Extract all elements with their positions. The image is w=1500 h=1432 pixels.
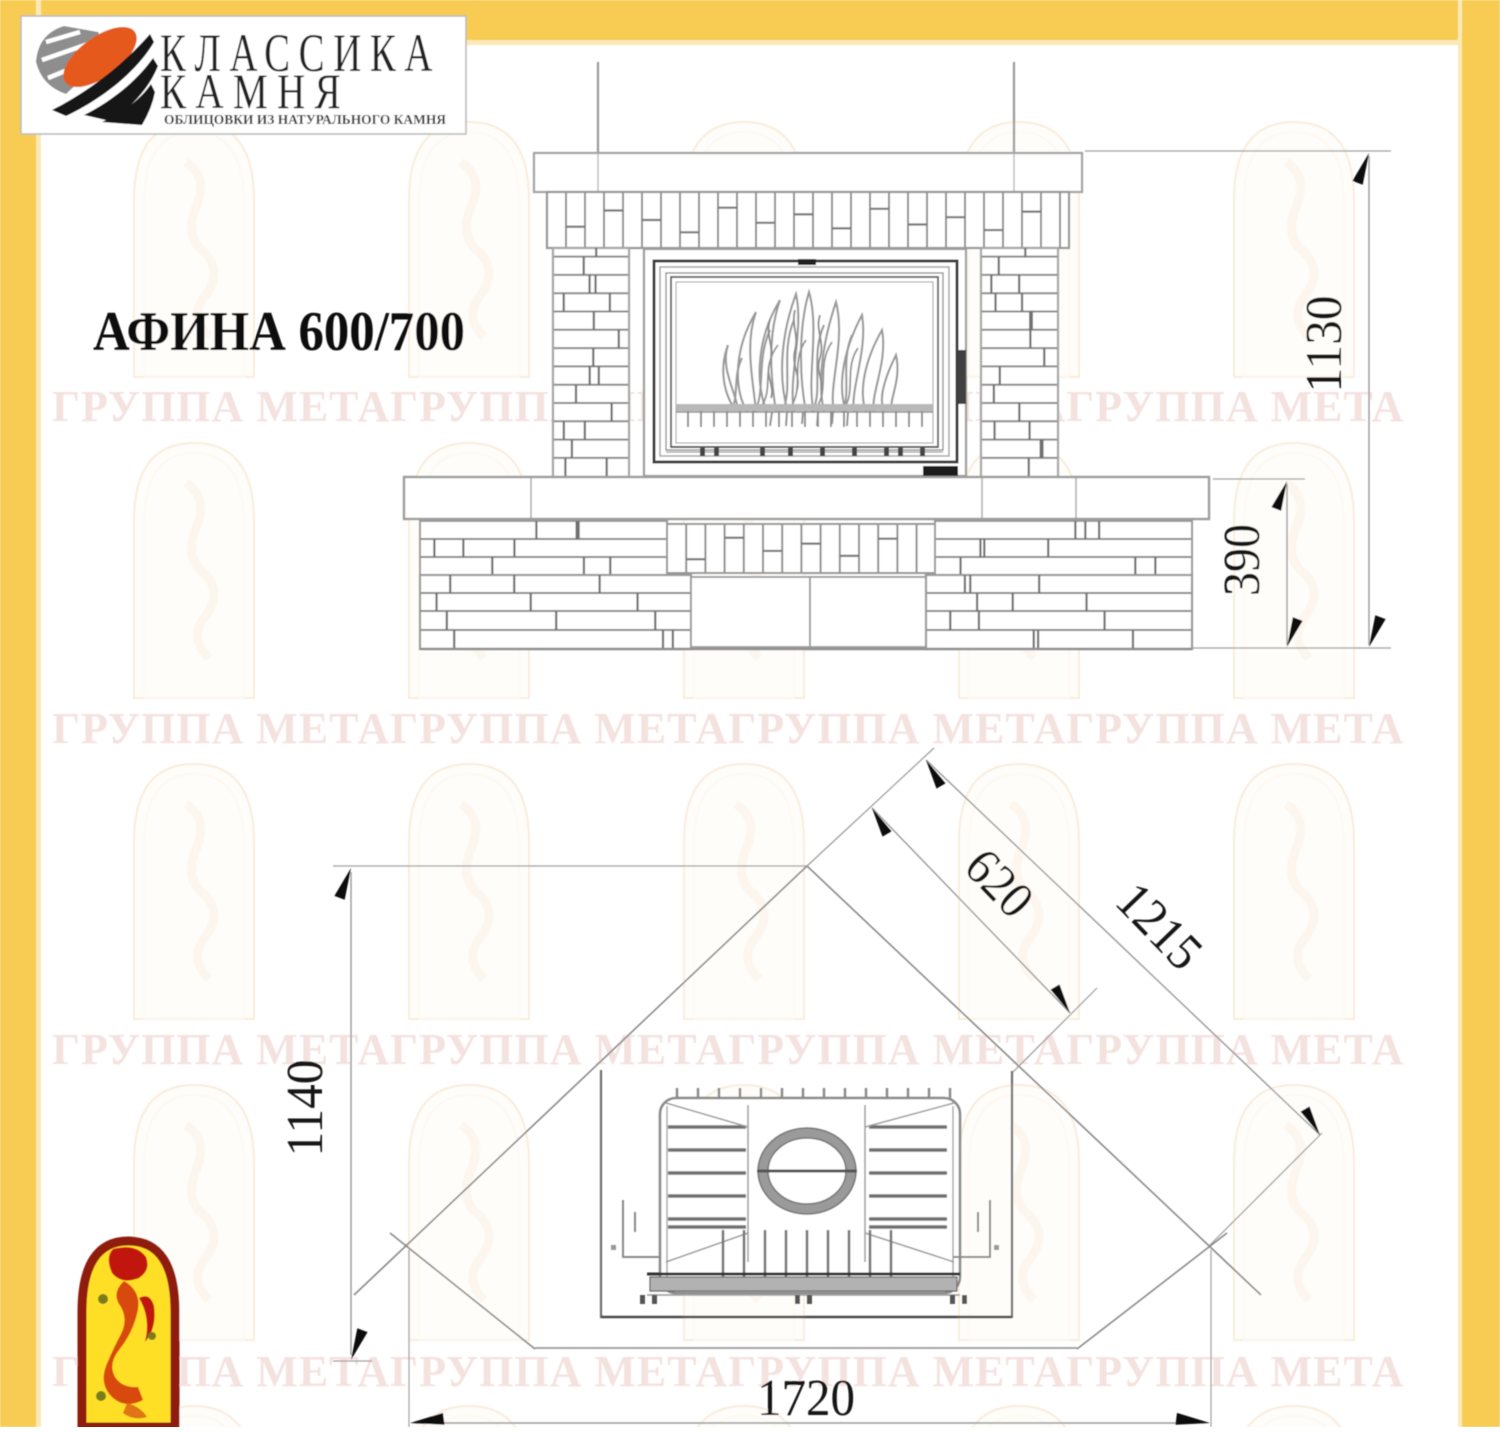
svg-text:1140: 1140 bbox=[277, 1060, 334, 1157]
svg-text:ГРУППА МЕТАГРУППА МЕТАГРУППА М: ГРУППА МЕТАГРУППА МЕТАГРУППА МЕТАГРУППА … bbox=[52, 704, 1404, 753]
svg-text:1130: 1130 bbox=[1296, 296, 1353, 393]
svg-text:1720: 1720 bbox=[757, 1370, 855, 1427]
svg-text:390: 390 bbox=[1214, 524, 1271, 596]
svg-text:1215: 1215 bbox=[1105, 872, 1213, 981]
svg-text:АФИНА 600/700: АФИНА 600/700 bbox=[93, 301, 465, 363]
svg-text:ГРУППА МЕТАГРУППА МЕТАГРУППА М: ГРУППА МЕТАГРУППА МЕТАГРУППА МЕТАГРУППА … bbox=[52, 1025, 1404, 1074]
svg-text:ГРУППА МЕТАГРУППА МЕТАГРУППА М: ГРУППА МЕТАГРУППА МЕТАГРУППА МЕТАГРУППА … bbox=[52, 1347, 1404, 1396]
svg-text:ОБЛИЦОВКИ ИЗ НАТУРАЛЬНОГО КАМН: ОБЛИЦОВКИ ИЗ НАТУРАЛЬНОГО КАМНЯ bbox=[164, 113, 446, 128]
svg-text:КАМНЯ: КАМНЯ bbox=[160, 63, 350, 119]
